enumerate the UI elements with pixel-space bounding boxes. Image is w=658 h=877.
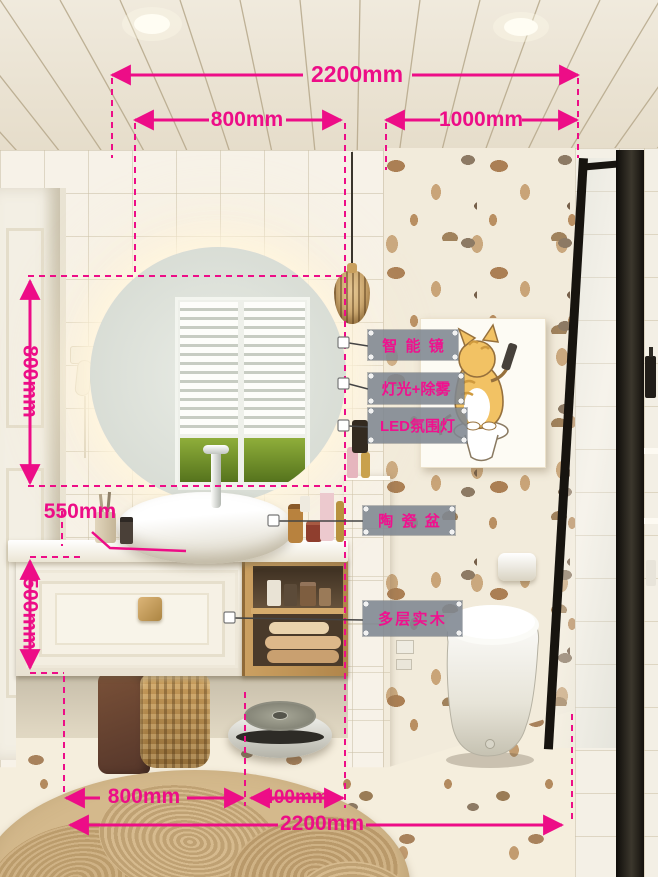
shower-right-wall bbox=[644, 148, 658, 877]
dim-top-mirror: 800mm bbox=[207, 109, 287, 130]
white-jar bbox=[300, 496, 310, 512]
label-led-ambient: LED氛围灯 bbox=[368, 408, 467, 443]
dim-counter-depth: 550mm bbox=[40, 501, 120, 522]
shampoo-bottle bbox=[645, 356, 656, 398]
label-light-defog: 灯光+除雾 bbox=[368, 373, 464, 404]
toiletry-jar-dark bbox=[284, 584, 297, 606]
dim-bottom-vanity: 800mm bbox=[102, 786, 186, 807]
dim-bottom-total: 2200mm bbox=[272, 813, 372, 834]
diffuser-bottle bbox=[352, 420, 368, 453]
shower-frame-post bbox=[616, 150, 644, 877]
wall-switch bbox=[396, 640, 414, 654]
window-divider bbox=[238, 302, 244, 482]
bathroom-annotated-render: 2200mm 800mm 1000mm 800mm 550mm 500mm 80… bbox=[0, 0, 658, 877]
rolled-towel bbox=[267, 650, 339, 663]
pendant-cord bbox=[351, 152, 353, 272]
shelf-top-cavity bbox=[253, 566, 343, 608]
robot-vacuum-bumper bbox=[236, 730, 324, 744]
toiletry-jar-white bbox=[267, 580, 281, 606]
window-sill bbox=[178, 482, 307, 490]
faucet-spout bbox=[203, 445, 229, 454]
toilet-paper-holder bbox=[498, 553, 536, 581]
dim-bottom-shelf: 400mm bbox=[252, 788, 340, 807]
shower-shelf bbox=[644, 448, 658, 454]
rolled-towel bbox=[265, 636, 341, 649]
dim-cabinet-height: 500mm bbox=[20, 569, 41, 659]
faucet-body bbox=[211, 450, 221, 508]
pendant-cap bbox=[347, 263, 357, 273]
vessel-sink bbox=[116, 492, 294, 564]
wall-socket bbox=[396, 659, 412, 670]
robot-vacuum-button bbox=[272, 711, 288, 720]
label-smart-mirror: 智能镜 bbox=[368, 330, 458, 360]
small-dark-bottle bbox=[120, 517, 133, 544]
gold-tube bbox=[336, 501, 344, 542]
toiletry-jar-small bbox=[319, 588, 331, 606]
cabinet-wood-knob bbox=[138, 597, 162, 621]
toiletry-canister bbox=[300, 582, 316, 606]
perfume-bottle-gold bbox=[361, 452, 370, 478]
door-molding-inner bbox=[55, 593, 209, 645]
hair-dryer-cord bbox=[84, 396, 86, 458]
shelf-bottom-cavity bbox=[253, 614, 343, 666]
wood-open-shelf bbox=[242, 556, 348, 676]
shampoo-pump bbox=[649, 347, 653, 357]
pink-bottle bbox=[320, 487, 334, 541]
label-multilayer-wood: 多层实木 bbox=[363, 601, 462, 636]
vanity-cabinet-door bbox=[26, 570, 238, 668]
wicker-basket bbox=[140, 674, 210, 768]
shower-shelf bbox=[644, 518, 658, 524]
lotion-bottle bbox=[646, 560, 656, 586]
dim-top-total: 2200mm bbox=[307, 63, 407, 86]
dim-wall-height: 800mm bbox=[20, 337, 41, 427]
rolled-towel bbox=[269, 622, 329, 634]
label-ceramic-basin: 陶瓷盆 bbox=[363, 506, 455, 535]
dim-top-right: 1000mm bbox=[439, 109, 523, 130]
mirror-window-reflection bbox=[175, 297, 310, 487]
